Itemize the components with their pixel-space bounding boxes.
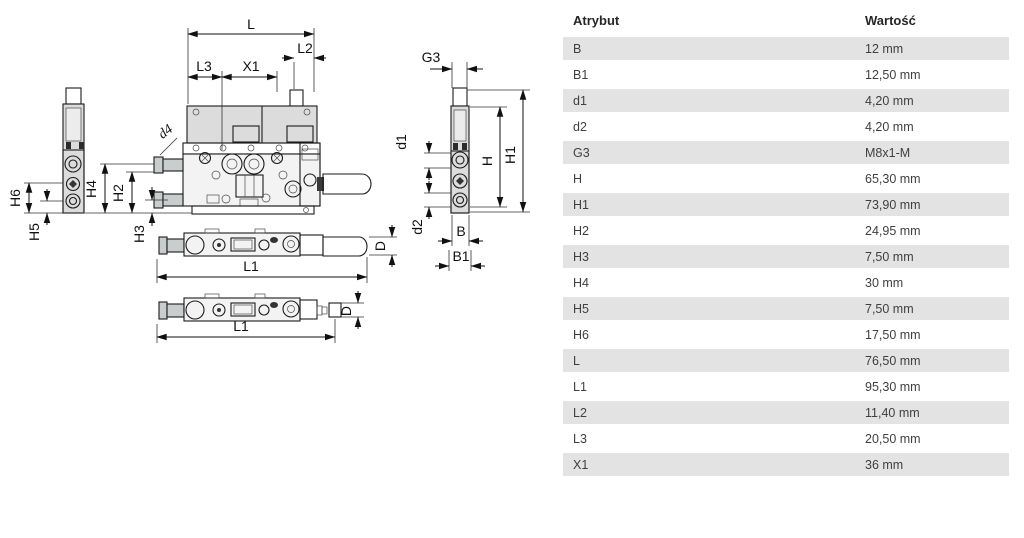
side-view-left — [63, 88, 84, 213]
attribute-name-cell: G3 — [563, 140, 855, 166]
attribute-value-cell: 7,50 mm — [855, 296, 1009, 322]
attribute-name-cell: H1 — [563, 192, 855, 218]
silencer — [323, 174, 371, 194]
attribute-table-body: B12 mmB112,50 mmd14,20 mmd24,20 mmG3M8x1… — [563, 37, 1009, 478]
silencer — [323, 237, 367, 256]
attribute-value-cell: 73,90 mm — [855, 192, 1009, 218]
table-row: H65,30 mm — [563, 166, 1009, 192]
dim-G3: G3 — [422, 49, 483, 92]
attribute-value-cell: 30 mm — [855, 270, 1009, 296]
dim-label-l3: L3 — [196, 58, 212, 74]
dim-d2: d2 — [409, 181, 451, 235]
attribute-value-cell: 4,20 mm — [855, 114, 1009, 140]
table-row: L76,50 mm — [563, 348, 1009, 374]
dim-H5: H5 — [26, 189, 63, 241]
attribute-name-cell: L — [563, 348, 855, 374]
dim-d1: d1 — [393, 134, 451, 180]
dim-B: B — [438, 215, 483, 246]
dim-label-b1: B1 — [452, 248, 469, 264]
dim-label-h5: H5 — [26, 223, 42, 241]
attribute-name-cell: H — [563, 166, 855, 192]
dim-d4-callout: d4 — [156, 122, 177, 155]
column-header-atrybut: Atrybut — [563, 8, 855, 37]
attribute-name-cell: B1 — [563, 62, 855, 88]
dim-label-l2: L2 — [297, 40, 313, 56]
column-header-wartosc: Wartość — [855, 8, 1009, 37]
dim-label-h6: H6 — [7, 189, 23, 207]
table-row: H173,90 mm — [563, 192, 1009, 218]
dim-D-bottom: D — [338, 291, 364, 329]
dim-H2: H2 — [110, 172, 154, 213]
attribute-value-cell: 65,30 mm — [855, 166, 1009, 192]
page: H6 H5 — [0, 0, 1024, 538]
dim-L2: L2 — [282, 40, 326, 89]
dim-label-l: L — [247, 16, 255, 32]
dim-L1-bottom: L1 — [157, 318, 335, 343]
table-row: B12 mm — [563, 37, 1009, 62]
attribute-value-cell: 17,50 mm — [855, 322, 1009, 348]
dim-label-h2: H2 — [110, 184, 126, 202]
dim-label-b: B — [456, 223, 465, 239]
attribute-value-cell: 36 mm — [855, 452, 1009, 478]
attribute-value-cell: 95,30 mm — [855, 374, 1009, 400]
dim-D-top: D — [369, 225, 397, 267]
table-row: X136 mm — [563, 452, 1009, 478]
dim-label-d1: d1 — [393, 134, 409, 150]
dim-B1: B1 — [435, 248, 485, 271]
table-row: L320,50 mm — [563, 426, 1009, 452]
dim-L1-top: L1 — [157, 257, 367, 283]
attribute-value-cell: 12 mm — [855, 37, 1009, 62]
table-row: H617,50 mm — [563, 322, 1009, 348]
bottom-view-1 — [159, 229, 367, 256]
attribute-name-cell: d1 — [563, 88, 855, 114]
table-row: B112,50 mm — [563, 62, 1009, 88]
dim-label-x1: X1 — [242, 58, 259, 74]
attribute-name-cell: H6 — [563, 322, 855, 348]
table-row: L195,30 mm — [563, 374, 1009, 400]
table-header-row: Atrybut Wartość — [563, 8, 1009, 37]
attribute-name-cell: L3 — [563, 426, 855, 452]
dim-label-h: H — [479, 156, 495, 166]
attributes: Atrybut Wartość B12 mmB112,50 mmd14,20 m… — [563, 8, 1009, 479]
table-row: L211,40 mm — [563, 400, 1009, 426]
attribute-value-cell: 12,50 mm — [855, 62, 1009, 88]
table-row: d14,20 mm — [563, 88, 1009, 114]
attribute-value-cell: 20,50 mm — [855, 426, 1009, 452]
dim-label-l1: L1 — [233, 318, 249, 334]
attribute-name-cell: L1 — [563, 374, 855, 400]
attribute-value-cell: 4,20 mm — [855, 88, 1009, 114]
attribute-value-cell: 11,40 mm — [855, 400, 1009, 426]
side-view-right — [451, 88, 469, 213]
attribute-name-cell: B — [563, 37, 855, 62]
table-row: H37,50 mm — [563, 244, 1009, 270]
dim-label-h4: H4 — [83, 180, 99, 198]
dim-label-d: D — [338, 306, 354, 316]
attribute-name-cell: d2 — [563, 114, 855, 140]
table-row: H57,50 mm — [563, 296, 1009, 322]
dim-label-g3: G3 — [422, 49, 441, 65]
attribute-value-cell: 7,50 mm — [855, 244, 1009, 270]
table-row: H224,95 mm — [563, 218, 1009, 244]
attribute-value-cell: 76,50 mm — [855, 348, 1009, 374]
table-row: d24,20 mm — [563, 114, 1009, 140]
dim-H1: H1 — [467, 90, 530, 212]
dim-label-d: D — [372, 241, 388, 251]
bottom-view-2 — [159, 294, 341, 321]
drawing-canvas: H6 H5 — [0, 0, 560, 360]
table-row: H430 mm — [563, 270, 1009, 296]
attribute-name-cell: H4 — [563, 270, 855, 296]
attribute-table: Atrybut Wartość B12 mmB112,50 mmd14,20 m… — [563, 8, 1009, 479]
front-view — [154, 90, 371, 214]
attribute-name-cell: L2 — [563, 400, 855, 426]
dim-label-l1: L1 — [243, 258, 259, 274]
dim-label-d2: d2 — [409, 219, 425, 235]
attribute-name-cell: H5 — [563, 296, 855, 322]
attribute-value-cell: 24,95 mm — [855, 218, 1009, 244]
dim-label-h3: H3 — [131, 225, 147, 243]
dim-label-h1: H1 — [502, 146, 518, 164]
technical-drawing: H6 H5 — [0, 0, 560, 365]
attribute-name-cell: H2 — [563, 218, 855, 244]
attribute-name-cell: H3 — [563, 244, 855, 270]
attribute-value-cell: M8x1-M — [855, 140, 1009, 166]
push-in-fitting-top — [154, 157, 183, 173]
dim-label-d4: d4 — [156, 122, 176, 142]
table-row: G3M8x1-M — [563, 140, 1009, 166]
attribute-name-cell: X1 — [563, 452, 855, 478]
